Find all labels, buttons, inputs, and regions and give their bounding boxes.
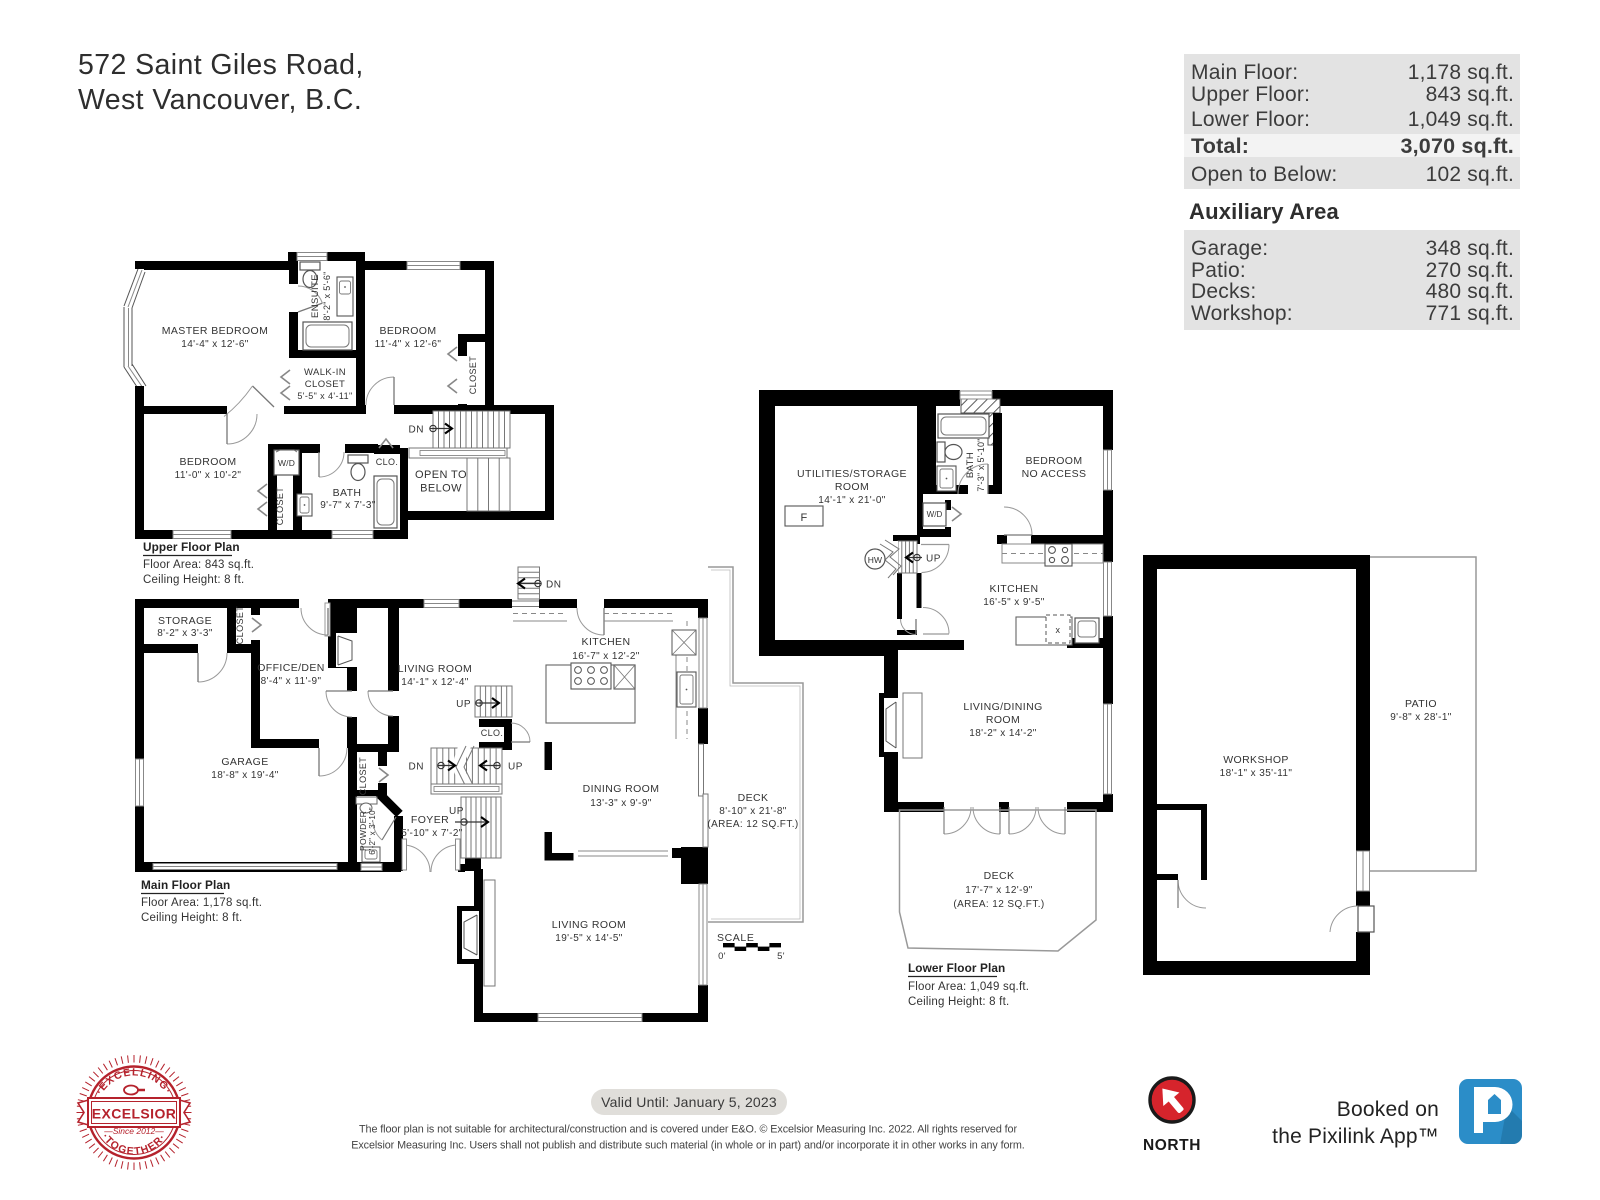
svg-text:5'-5" x 4'-11": 5'-5" x 4'-11"	[297, 391, 352, 401]
svg-text:Upper Floor:: Upper Floor:	[1191, 83, 1310, 106]
svg-text:NO ACCESS: NO ACCESS	[1022, 468, 1087, 480]
svg-text:CLOSET: CLOSET	[275, 487, 285, 526]
svg-text:5'-10" x 7'-2": 5'-10" x 7'-2"	[401, 828, 463, 839]
svg-text:DN: DN	[409, 425, 424, 436]
svg-text:Main Floor Plan: Main Floor Plan	[141, 878, 230, 892]
svg-text:—Since 2012—: —Since 2012—	[103, 1126, 164, 1136]
svg-text:Floor Area: 1,049 sq.ft.: Floor Area: 1,049 sq.ft.	[908, 981, 1029, 993]
svg-text:PATIO: PATIO	[1405, 698, 1437, 710]
svg-text:16'-7" x 12'-2": 16'-7" x 12'-2"	[572, 651, 640, 662]
svg-text:WALK-IN: WALK-IN	[304, 367, 346, 378]
svg-text:771 sq.ft.: 771 sq.ft.	[1426, 302, 1514, 325]
svg-text:DINING ROOM: DINING ROOM	[583, 783, 660, 795]
svg-text:the Pixilink App™: the Pixilink App™	[1272, 1125, 1439, 1148]
svg-text:LIVING/DINING: LIVING/DINING	[963, 701, 1042, 713]
svg-text:102 sq.ft.: 102 sq.ft.	[1426, 163, 1514, 186]
svg-text:Open to Below:: Open to Below:	[1191, 163, 1337, 186]
svg-text:Valid Until: January 5, 2023: Valid Until: January 5, 2023	[601, 1094, 777, 1110]
svg-text:18'-8" x 19'-4": 18'-8" x 19'-4"	[211, 770, 279, 781]
svg-text:UP: UP	[508, 762, 523, 773]
svg-text:SCALE: SCALE	[717, 932, 754, 944]
svg-text:Lower Floor Plan: Lower Floor Plan	[908, 961, 1005, 975]
svg-text:Total:: Total:	[1191, 134, 1249, 158]
svg-text:The floor plan is not suitable: The floor plan is not suitable for archi…	[359, 1124, 1017, 1136]
svg-text:8'-10" x 21'-8": 8'-10" x 21'-8"	[719, 806, 787, 817]
svg-text:POWDER: POWDER	[358, 811, 368, 851]
svg-text:14'-4" x 12'-6": 14'-4" x 12'-6"	[181, 339, 249, 350]
svg-text:FOYER: FOYER	[411, 814, 449, 826]
svg-text:BEDROOM: BEDROOM	[1025, 455, 1082, 467]
svg-text:(AREA: 12 SQ.FT.): (AREA: 12 SQ.FT.)	[707, 819, 798, 830]
svg-text:Lower Floor:: Lower Floor:	[1191, 108, 1310, 131]
svg-text:9'-7" x 7'-3": 9'-7" x 7'-3"	[320, 500, 376, 511]
svg-text:7'-3" x 5'-10": 7'-3" x 5'-10"	[976, 438, 986, 491]
svg-text:8'-4" x 11'-9": 8'-4" x 11'-9"	[261, 676, 322, 687]
svg-text:BEDROOM: BEDROOM	[379, 325, 436, 337]
svg-text:DECK: DECK	[738, 792, 769, 804]
svg-text:14'-1" x 12'-4": 14'-1" x 12'-4"	[401, 677, 469, 688]
svg-text:UP: UP	[456, 699, 471, 710]
svg-text:348 sq.ft.: 348 sq.ft.	[1426, 237, 1514, 260]
svg-text:Ceiling Height: 8 ft.: Ceiling Height: 8 ft.	[908, 996, 1009, 1008]
svg-text:Garage:: Garage:	[1191, 237, 1268, 260]
svg-text:CLO.: CLO.	[481, 728, 504, 738]
svg-text:843 sq.ft.: 843 sq.ft.	[1426, 83, 1514, 106]
svg-text:5': 5'	[777, 951, 785, 962]
svg-text:DN: DN	[546, 580, 561, 591]
svg-text:LIVING ROOM: LIVING ROOM	[552, 919, 626, 931]
svg-text:OPEN TO: OPEN TO	[415, 469, 467, 481]
svg-text:8'-2" x 5'-6": 8'-2" x 5'-6"	[322, 271, 332, 320]
svg-text:1,178 sq.ft.: 1,178 sq.ft.	[1408, 61, 1514, 84]
svg-text:19'-5" x 14'-5": 19'-5" x 14'-5"	[555, 933, 623, 944]
svg-text:NORTH: NORTH	[1143, 1137, 1201, 1154]
svg-text:13'-3" x 9'-9": 13'-3" x 9'-9"	[590, 798, 652, 809]
svg-text:CLO.: CLO.	[376, 457, 399, 467]
svg-text:Decks:: Decks:	[1191, 280, 1256, 303]
svg-text:CLOSET: CLOSET	[358, 757, 368, 796]
svg-text:WORKSHOP: WORKSHOP	[1223, 754, 1289, 766]
svg-text:UP: UP	[926, 554, 941, 565]
svg-text:BATH: BATH	[333, 487, 362, 499]
svg-text:1,049 sq.ft.: 1,049 sq.ft.	[1408, 108, 1514, 131]
svg-text:MASTER BEDROOM: MASTER BEDROOM	[162, 325, 269, 337]
svg-text:UTILITIES/STORAGE: UTILITIES/STORAGE	[797, 468, 907, 480]
svg-text:EXCELSIOR: EXCELSIOR	[92, 1106, 177, 1122]
svg-text:9'-8" x 28'-1": 9'-8" x 28'-1"	[1390, 712, 1452, 723]
svg-text:LIVING ROOM: LIVING ROOM	[398, 663, 472, 675]
svg-text:OFFICE/DEN: OFFICE/DEN	[257, 662, 325, 674]
svg-text:6'-2" x 3'-10": 6'-2" x 3'-10"	[368, 807, 377, 855]
svg-text:11'-4" x 12'-6": 11'-4" x 12'-6"	[375, 339, 442, 350]
svg-text:11'-0" x 10'-2": 11'-0" x 10'-2"	[175, 470, 242, 481]
svg-text:Floor Area: 1,178 sq.ft.: Floor Area: 1,178 sq.ft.	[141, 897, 262, 909]
svg-text:16'-5" x 9'-5": 16'-5" x 9'-5"	[983, 597, 1045, 608]
svg-text:F: F	[800, 512, 807, 524]
svg-text:18'-1" x 35'-11": 18'-1" x 35'-11"	[1220, 768, 1293, 779]
svg-text:BELOW: BELOW	[420, 483, 462, 495]
svg-text:STORAGE: STORAGE	[158, 615, 212, 627]
svg-text:CLOSET: CLOSET	[235, 606, 245, 645]
svg-text:572 Saint Giles Road,: 572 Saint Giles Road,	[78, 49, 364, 81]
svg-text:GARAGE: GARAGE	[221, 756, 268, 768]
svg-text:BEDROOM: BEDROOM	[179, 456, 236, 468]
svg-text:DN: DN	[409, 762, 424, 773]
svg-text:Ceiling Height: 8 ft.: Ceiling Height: 8 ft.	[143, 574, 244, 586]
svg-text:KITCHEN: KITCHEN	[990, 583, 1039, 595]
svg-text:West Vancouver, B.C.: West Vancouver, B.C.	[78, 84, 362, 116]
svg-text:17'-7" x 12'-9": 17'-7" x 12'-9"	[965, 885, 1033, 896]
svg-text:CLOSET: CLOSET	[305, 379, 345, 390]
svg-text:W/D: W/D	[927, 510, 943, 519]
svg-text:3,070 sq.ft.: 3,070 sq.ft.	[1400, 134, 1514, 158]
svg-text:Excelsior Measuring Inc. Users: Excelsior Measuring Inc. Users shall not…	[351, 1140, 1025, 1152]
svg-text:HW: HW	[868, 555, 883, 565]
svg-text:KITCHEN: KITCHEN	[582, 636, 631, 648]
svg-text:Workshop:: Workshop:	[1191, 302, 1293, 325]
svg-text:0': 0'	[718, 951, 726, 962]
svg-text:DECK: DECK	[984, 870, 1015, 882]
svg-text:Main Floor:: Main Floor:	[1191, 61, 1298, 84]
svg-text:Upper Floor Plan: Upper Floor Plan	[143, 540, 240, 554]
svg-text:18'-2" x 14'-2": 18'-2" x 14'-2"	[969, 728, 1037, 739]
svg-text:270 sq.ft.: 270 sq.ft.	[1426, 259, 1514, 282]
svg-text:8'-2" x 3'-3": 8'-2" x 3'-3"	[157, 628, 213, 639]
svg-text:Booked on: Booked on	[1337, 1098, 1439, 1121]
svg-text:480 sq.ft.: 480 sq.ft.	[1426, 280, 1514, 303]
svg-text:W/D: W/D	[278, 458, 295, 468]
svg-text:ROOM: ROOM	[835, 481, 869, 493]
svg-text:Patio:: Patio:	[1191, 259, 1246, 282]
svg-text:CLOSET: CLOSET	[468, 356, 478, 395]
svg-text:UP: UP	[449, 806, 464, 817]
svg-text:(AREA: 12 SQ.FT.): (AREA: 12 SQ.FT.)	[953, 899, 1044, 910]
svg-text:Auxiliary Area: Auxiliary Area	[1189, 199, 1340, 224]
svg-text:x: x	[1056, 625, 1061, 635]
svg-text:ROOM: ROOM	[986, 714, 1020, 726]
svg-text:Ceiling Height: 8 ft.: Ceiling Height: 8 ft.	[141, 912, 242, 924]
svg-text:BATH: BATH	[965, 452, 976, 478]
svg-text:ENSUITE: ENSUITE	[310, 274, 321, 318]
svg-text:14'-1" x 21'-0": 14'-1" x 21'-0"	[818, 495, 886, 506]
svg-text:Floor Area: 843 sq.ft.: Floor Area: 843 sq.ft.	[143, 559, 254, 571]
